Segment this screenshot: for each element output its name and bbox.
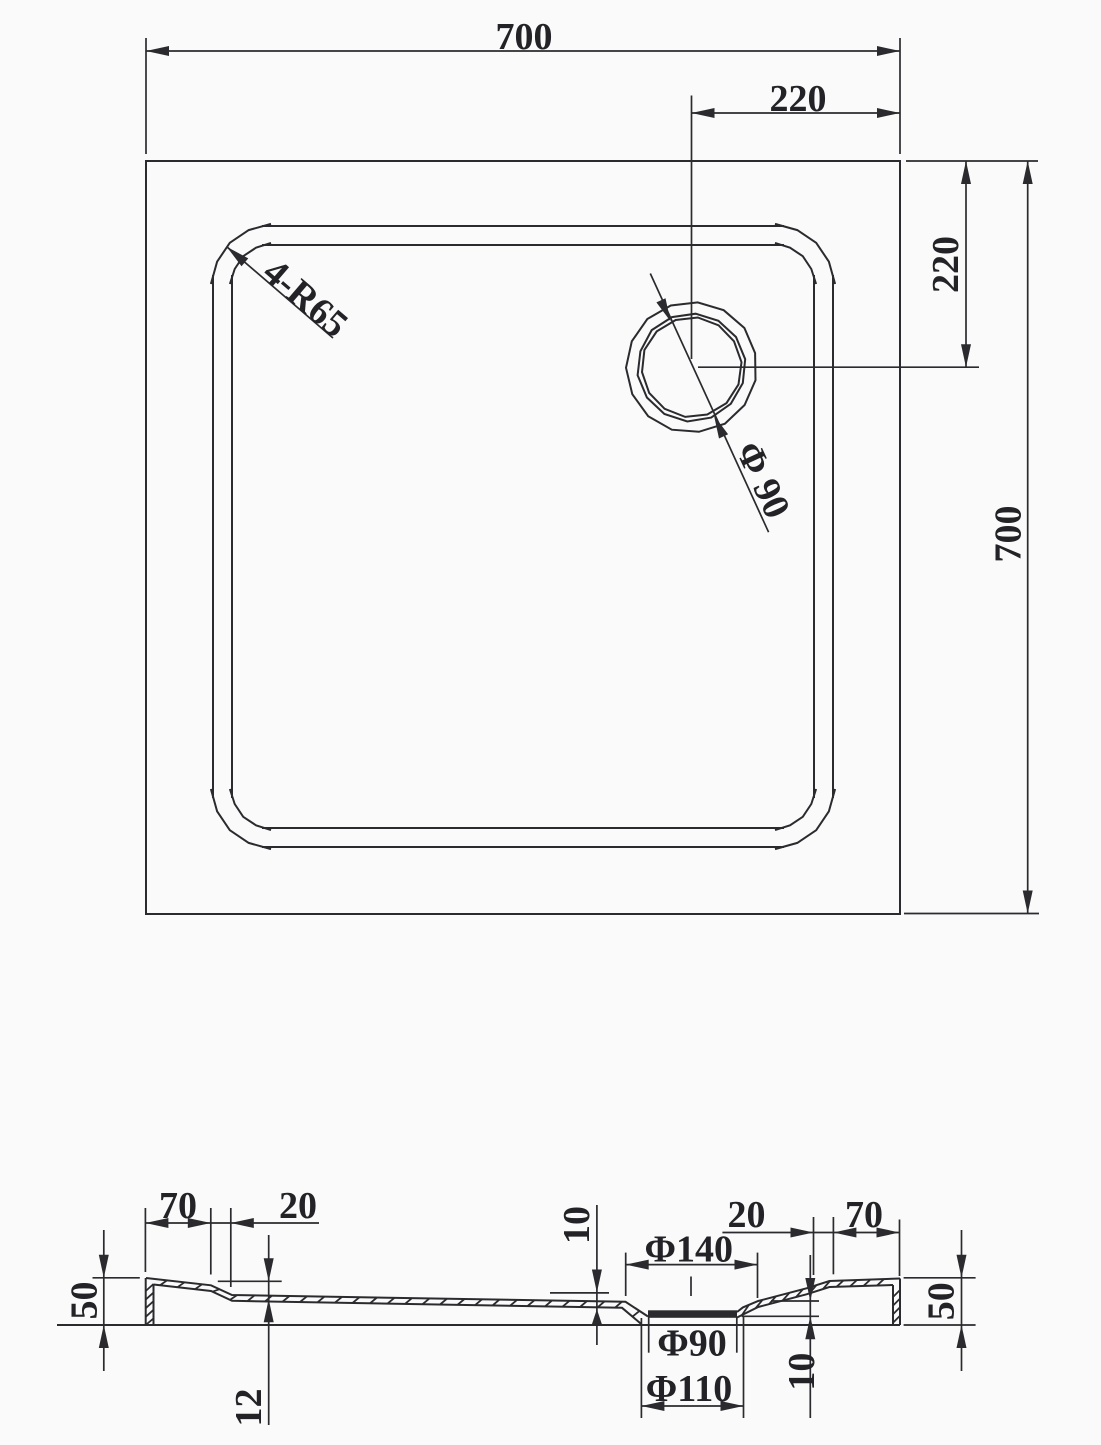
svg-text:12: 12 xyxy=(228,1389,270,1427)
svg-text:70: 70 xyxy=(159,1185,197,1227)
svg-text:20: 20 xyxy=(279,1185,317,1227)
svg-text:220: 220 xyxy=(925,236,967,293)
svg-text:50: 50 xyxy=(64,1282,106,1320)
svg-text:Φ90: Φ90 xyxy=(657,1323,727,1365)
svg-text:10: 10 xyxy=(781,1353,823,1391)
svg-text:700: 700 xyxy=(496,16,553,58)
svg-text:Φ140: Φ140 xyxy=(644,1229,733,1271)
svg-text:Φ110: Φ110 xyxy=(646,1368,732,1410)
svg-text:20: 20 xyxy=(728,1194,766,1236)
svg-text:700: 700 xyxy=(988,506,1030,563)
svg-text:70: 70 xyxy=(845,1194,883,1236)
svg-text:220: 220 xyxy=(770,78,827,120)
svg-text:50: 50 xyxy=(921,1282,963,1320)
svg-text:10: 10 xyxy=(556,1206,598,1244)
